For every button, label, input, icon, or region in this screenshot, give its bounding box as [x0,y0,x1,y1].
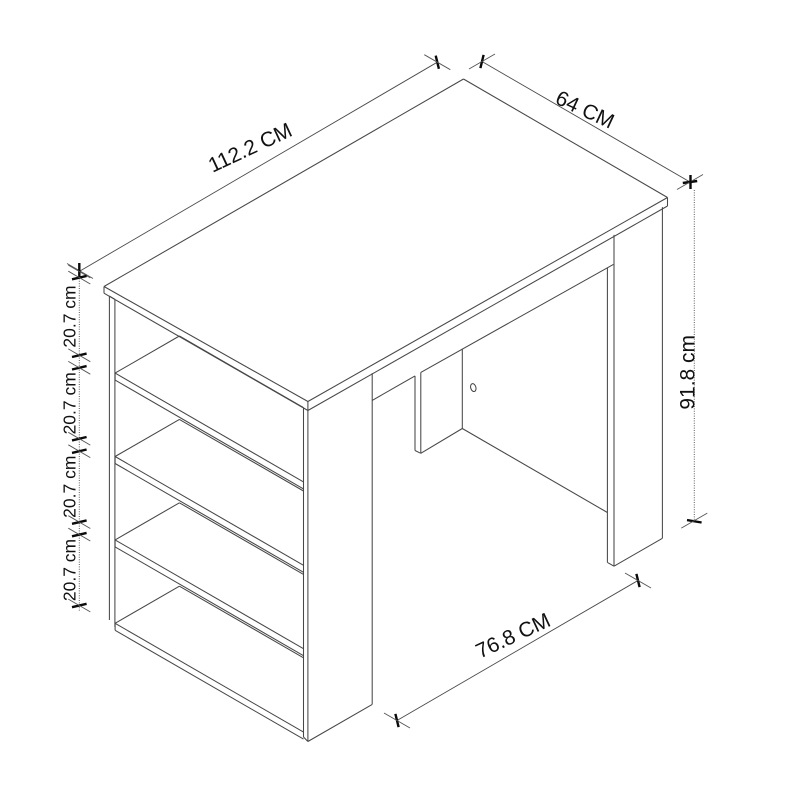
svg-text:64 CM: 64 CM [552,87,618,134]
svg-text:20.7 cm: 20.7 cm [60,285,80,347]
svg-text:112.2 CM: 112.2 CM [205,119,296,178]
svg-text:20.7 cm: 20.7 cm [60,456,80,518]
svg-text:20.7 cm: 20.7 cm [60,539,80,601]
svg-text:91.8 cm: 91.8 cm [677,335,700,410]
svg-text:20.7 cm: 20.7 cm [60,372,80,434]
